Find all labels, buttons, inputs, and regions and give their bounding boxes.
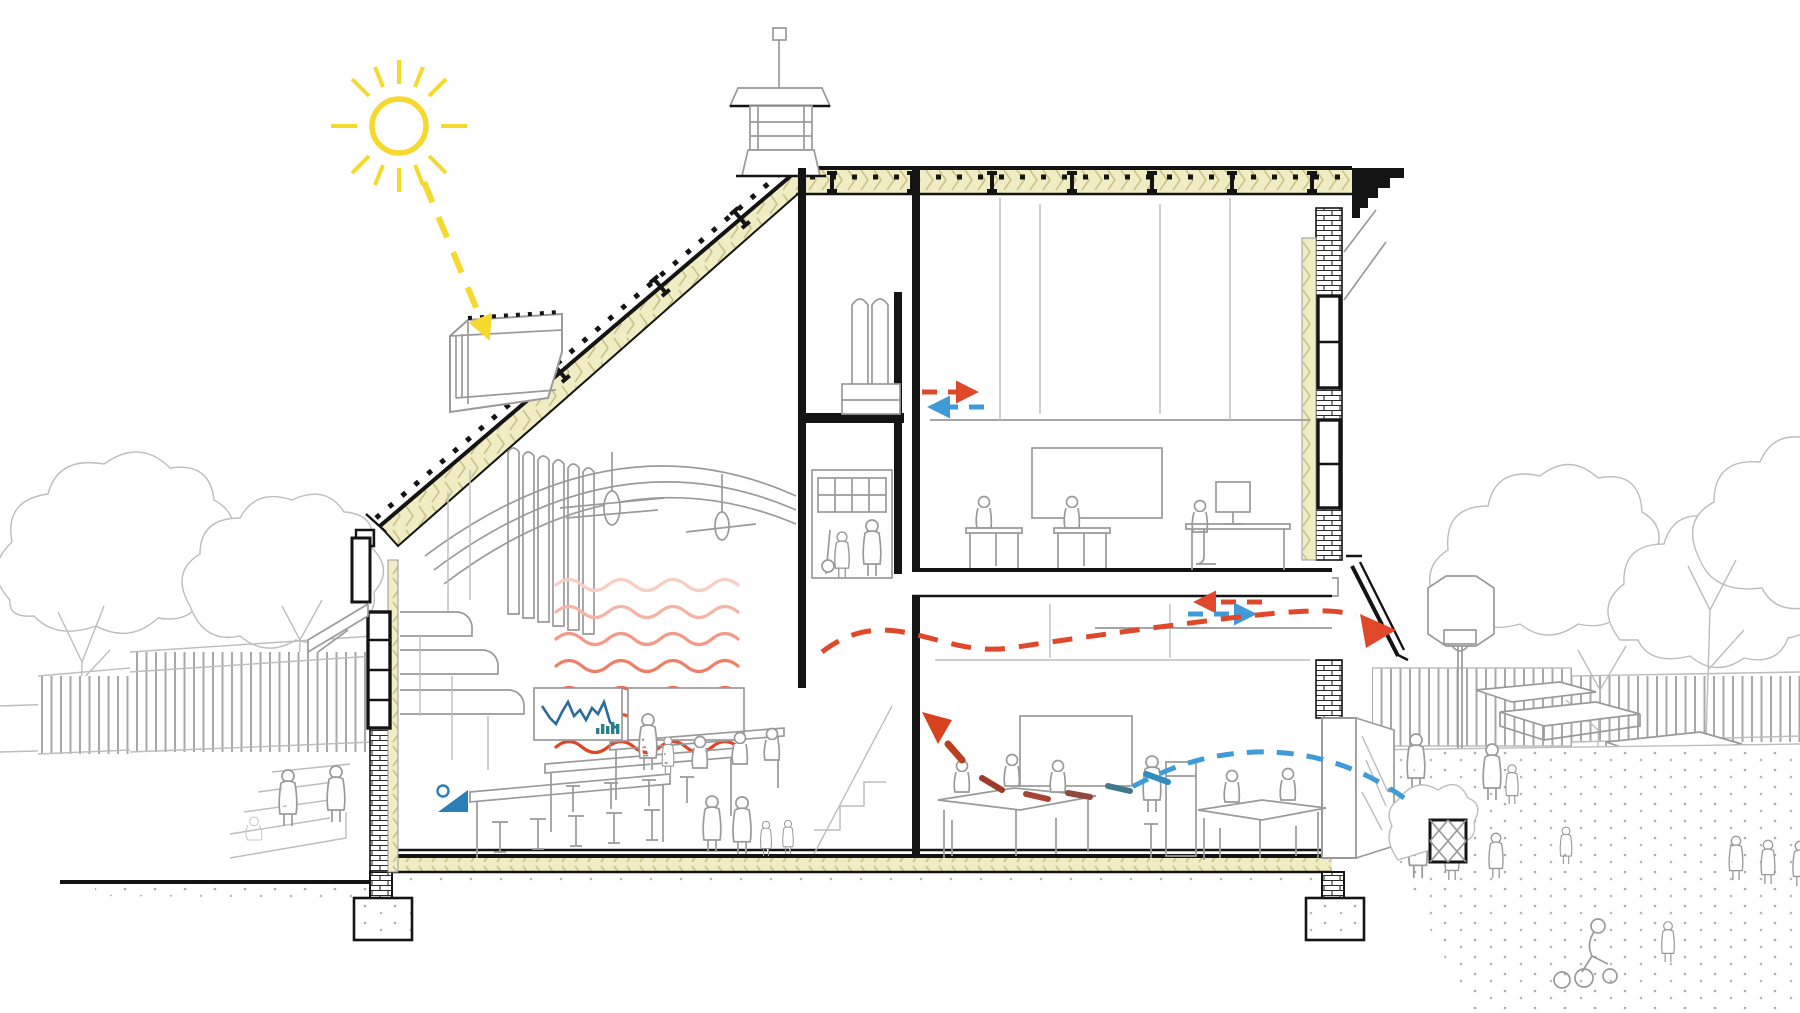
stair xyxy=(814,706,892,854)
hall-east-wall xyxy=(798,168,806,688)
classroom-west-wall xyxy=(912,168,920,856)
rising-warm-air-arrow xyxy=(922,712,962,760)
adult-figure xyxy=(279,770,297,826)
sun-icon xyxy=(331,60,467,192)
glazed-door xyxy=(1322,718,1394,858)
bucket-icon xyxy=(822,560,834,572)
slab-level-vent-arrows xyxy=(1188,602,1262,614)
child-figure xyxy=(662,737,674,774)
building-shell xyxy=(308,28,1478,940)
flat-roof xyxy=(796,168,1352,194)
sensor-wedge-icon xyxy=(438,786,469,813)
architectural-section-diagram xyxy=(0,0,1800,1013)
child-figure xyxy=(327,766,345,822)
ventilation-stack xyxy=(842,299,900,414)
finial-icon xyxy=(773,28,786,40)
teacher-figure xyxy=(1143,756,1161,812)
crouching-child-figure xyxy=(246,817,262,840)
upper-classroom-vent-arrows xyxy=(922,392,984,407)
left-landscape xyxy=(0,452,384,898)
solar-gain-ray-arrow xyxy=(424,182,487,334)
gallery-steps xyxy=(400,612,524,770)
playground xyxy=(1362,433,1800,1010)
upper-classroom xyxy=(930,198,1310,570)
roof-lantern xyxy=(730,28,830,176)
chair xyxy=(1144,824,1158,858)
whiteboard xyxy=(1020,716,1132,786)
whiteboard-chart xyxy=(534,688,744,740)
seated-figure xyxy=(764,729,779,761)
corridor-wall xyxy=(894,292,902,574)
lower-classroom xyxy=(935,604,1332,860)
pavement-stipple xyxy=(95,884,370,898)
seated-figure xyxy=(732,733,747,765)
seated-figure xyxy=(692,737,707,769)
corridor-door xyxy=(812,470,892,578)
ceiling-fan-icon xyxy=(560,452,664,525)
teacher-figure xyxy=(639,714,657,770)
dining-tables xyxy=(470,728,784,858)
whiteboard xyxy=(1032,448,1162,518)
lectern xyxy=(1166,762,1196,856)
computer-workstation xyxy=(1186,482,1290,570)
floor-slab-insulation xyxy=(392,856,1332,872)
pitched-roof xyxy=(356,160,800,546)
corridor-block xyxy=(812,299,900,854)
adult-figure xyxy=(703,796,721,852)
warm-extract-dashed-path xyxy=(822,611,1356,652)
group-table xyxy=(1198,769,1326,861)
window xyxy=(352,538,370,602)
intermediate-slab xyxy=(912,570,1332,596)
adult-figure xyxy=(733,797,751,854)
brick-corbel xyxy=(1352,168,1404,218)
student-desk xyxy=(966,497,1022,569)
section-drawing xyxy=(0,0,1800,1013)
skylight-monitor xyxy=(450,312,562,412)
monitor-icon xyxy=(1216,482,1250,512)
assembly-hall xyxy=(400,448,796,858)
entrance-railing xyxy=(38,636,374,754)
